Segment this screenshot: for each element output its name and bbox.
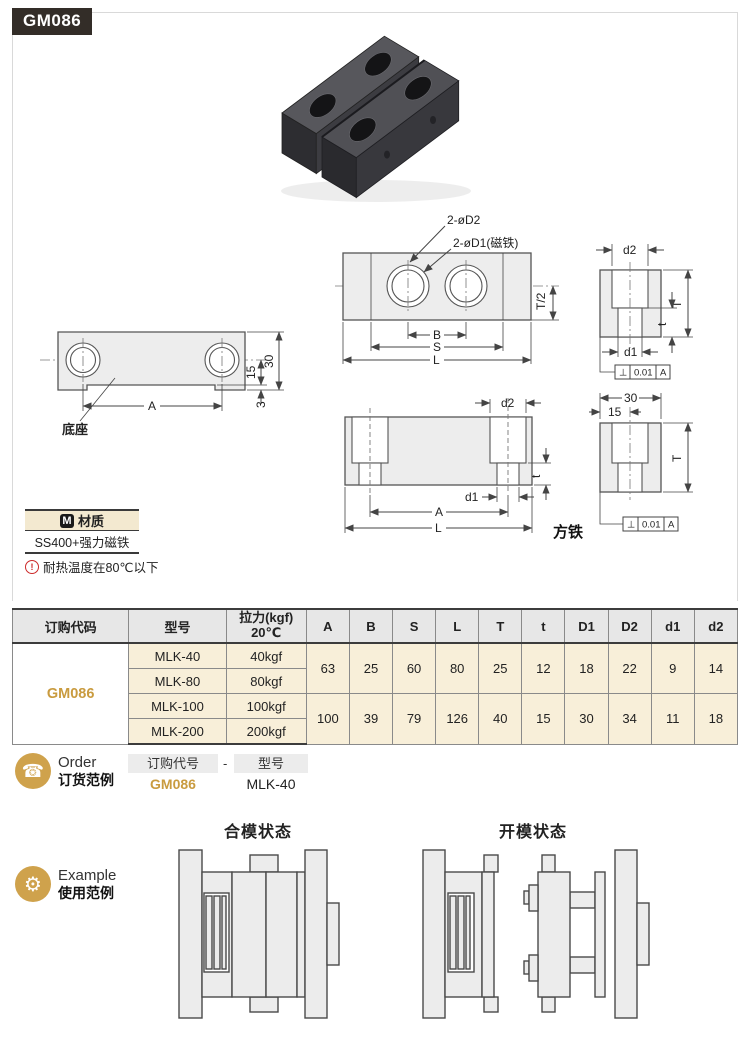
col-header-model: 型号 bbox=[129, 609, 226, 643]
material-header: M 材质 bbox=[25, 509, 139, 531]
dim-cell-A: 100 bbox=[306, 694, 349, 745]
dim-cell-D2: 22 bbox=[608, 643, 651, 694]
drawing-side-view-lower: 30 15 T ⊥ 0.01 A bbox=[585, 385, 740, 555]
dim-d1: d1 bbox=[624, 345, 638, 359]
dim-30: 30 bbox=[262, 354, 276, 368]
drawing-base-view: A 30 15 3 底座 bbox=[32, 318, 322, 453]
material-note: ! 耐热温度在80℃以下 bbox=[25, 557, 158, 576]
base-label: 底座 bbox=[62, 422, 88, 437]
dim-cell-T: 25 bbox=[479, 643, 522, 694]
product-code-badge: GM086 bbox=[12, 8, 92, 35]
order-code-cell: GM086 bbox=[13, 643, 129, 744]
col-header-force-line2: 20℃ bbox=[227, 626, 306, 641]
dim-d1: d1 bbox=[465, 490, 479, 504]
model-cell: MLK-40 bbox=[129, 643, 226, 669]
dim-cell-D2: 34 bbox=[608, 694, 651, 745]
mold-open-title: 开模状态 bbox=[499, 818, 567, 842]
model-cell: MLK-200 bbox=[129, 719, 226, 745]
order-section-label: Order 订货范例 bbox=[58, 754, 114, 789]
dim-cell-D1: 30 bbox=[565, 694, 608, 745]
square-block-label: 方铁 bbox=[553, 521, 583, 542]
material-icon: M bbox=[60, 514, 74, 528]
dim-cell-S: 79 bbox=[393, 694, 436, 745]
dim-cell-t: 15 bbox=[522, 694, 565, 745]
table-row: GM086 MLK-40 40kgf 63 25 60 80 25 12 18 … bbox=[13, 643, 738, 669]
col-header-d2: d2 bbox=[694, 609, 737, 643]
callout-d1: 2-øD1(磁铁) bbox=[453, 235, 518, 250]
col-header-d1: d1 bbox=[651, 609, 694, 643]
col-header-force-line1: 拉力(kgf) bbox=[227, 611, 306, 626]
dim-15: 15 bbox=[244, 365, 258, 379]
fcf-value: 0.01 bbox=[642, 520, 661, 531]
dim-s: S bbox=[433, 340, 441, 354]
dim-d2: d2 bbox=[501, 396, 515, 410]
col-header-D1: D1 bbox=[565, 609, 608, 643]
dim-l: L bbox=[433, 353, 440, 367]
order-label-en: Order bbox=[58, 754, 114, 772]
dim-cell-B: 25 bbox=[349, 643, 392, 694]
catalog-page: GM086 2-øD2 2-øD1(磁铁) bbox=[0, 0, 750, 1045]
material-value: SS400+强力磁铁 bbox=[25, 531, 139, 554]
dim-30: 30 bbox=[624, 391, 638, 405]
dim-cell-L: 126 bbox=[436, 694, 479, 745]
dim-cell-S: 60 bbox=[393, 643, 436, 694]
order-model-value: MLK-40 bbox=[234, 776, 308, 792]
force-cell: 100kgf bbox=[226, 694, 306, 719]
order-label-zh: 订货范例 bbox=[58, 772, 114, 789]
dim-cell-L: 80 bbox=[436, 643, 479, 694]
model-cell: MLK-80 bbox=[129, 669, 226, 694]
fcf-value: 0.01 bbox=[634, 368, 653, 379]
dim-15: 15 bbox=[608, 405, 622, 419]
order-phone-icon: ☎ bbox=[15, 753, 51, 789]
col-header-T: T bbox=[479, 609, 522, 643]
fcf-symbol: ⊥ bbox=[627, 520, 635, 531]
dim-a: A bbox=[148, 399, 156, 413]
material-title: 材质 bbox=[78, 511, 104, 530]
product-photo bbox=[268, 25, 488, 205]
dim-3: 3 bbox=[254, 401, 268, 408]
fcf-datum: A bbox=[668, 520, 675, 531]
dim-cell-B: 39 bbox=[349, 694, 392, 745]
dim-l: L bbox=[435, 521, 442, 535]
drawing-side-view-upper: d2 T t d1 ⊥ 0.01 A bbox=[585, 230, 740, 390]
force-cell: 80kgf bbox=[226, 669, 306, 694]
dim-cell-T: 40 bbox=[479, 694, 522, 745]
dim-cell-d2: 14 bbox=[694, 643, 737, 694]
order-code-value: GM086 bbox=[128, 776, 218, 792]
mold-open-diagram bbox=[420, 843, 655, 1043]
dim-cell-A: 63 bbox=[306, 643, 349, 694]
dim-cell-d2: 18 bbox=[694, 694, 737, 745]
force-cell: 200kgf bbox=[226, 719, 306, 745]
drawing-top-view: 2-øD2 2-øD1(磁铁) B S L T/2 bbox=[333, 210, 568, 370]
col-header-force: 拉力(kgf) 20℃ bbox=[226, 609, 306, 643]
dim-a: A bbox=[435, 505, 443, 519]
example-gear-icon: ⚙ bbox=[15, 866, 51, 902]
dim-T: T bbox=[670, 454, 684, 462]
order-separator: - bbox=[223, 756, 227, 771]
material-note-text: 耐热温度在80℃以下 bbox=[43, 557, 158, 576]
example-label-en: Example bbox=[58, 867, 116, 885]
mold-closed-title: 合模状态 bbox=[224, 818, 292, 842]
force-cell: 40kgf bbox=[226, 643, 306, 669]
col-header-t: t bbox=[522, 609, 565, 643]
example-section-label: Example 使用范例 bbox=[58, 867, 116, 902]
fcf-symbol: ⊥ bbox=[619, 368, 627, 379]
mold-closed-diagram bbox=[172, 843, 372, 1043]
col-header-A: A bbox=[306, 609, 349, 643]
col-header-L: L bbox=[436, 609, 479, 643]
dim-cell-d1: 9 bbox=[651, 643, 694, 694]
warning-icon: ! bbox=[25, 560, 39, 574]
order-model-box: 型号 bbox=[234, 754, 308, 773]
col-header-B: B bbox=[349, 609, 392, 643]
drawing-front-view: d2 t d1 A L bbox=[335, 390, 570, 545]
dim-cell-D1: 18 bbox=[565, 643, 608, 694]
col-header-order-code: 订购代码 bbox=[13, 609, 129, 643]
spec-table: 订购代码 型号 拉力(kgf) 20℃ A B S L T t D1 D2 d1… bbox=[12, 608, 738, 745]
material-box: M 材质 SS400+强力磁铁 bbox=[25, 509, 139, 554]
dim-cell-t: 12 bbox=[522, 643, 565, 694]
dim-cell-d1: 11 bbox=[651, 694, 694, 745]
fcf-datum: A bbox=[660, 368, 667, 379]
dim-t-half: T/2 bbox=[534, 292, 548, 310]
callout-d2: 2-øD2 bbox=[447, 213, 481, 227]
table-header-row: 订购代码 型号 拉力(kgf) 20℃ A B S L T t D1 D2 d1… bbox=[13, 609, 738, 643]
example-label-zh: 使用范例 bbox=[58, 885, 116, 902]
order-code-box: 订购代号 bbox=[128, 754, 218, 773]
model-cell: MLK-100 bbox=[129, 694, 226, 719]
col-header-S: S bbox=[393, 609, 436, 643]
col-header-D2: D2 bbox=[608, 609, 651, 643]
dim-d2: d2 bbox=[623, 243, 637, 257]
